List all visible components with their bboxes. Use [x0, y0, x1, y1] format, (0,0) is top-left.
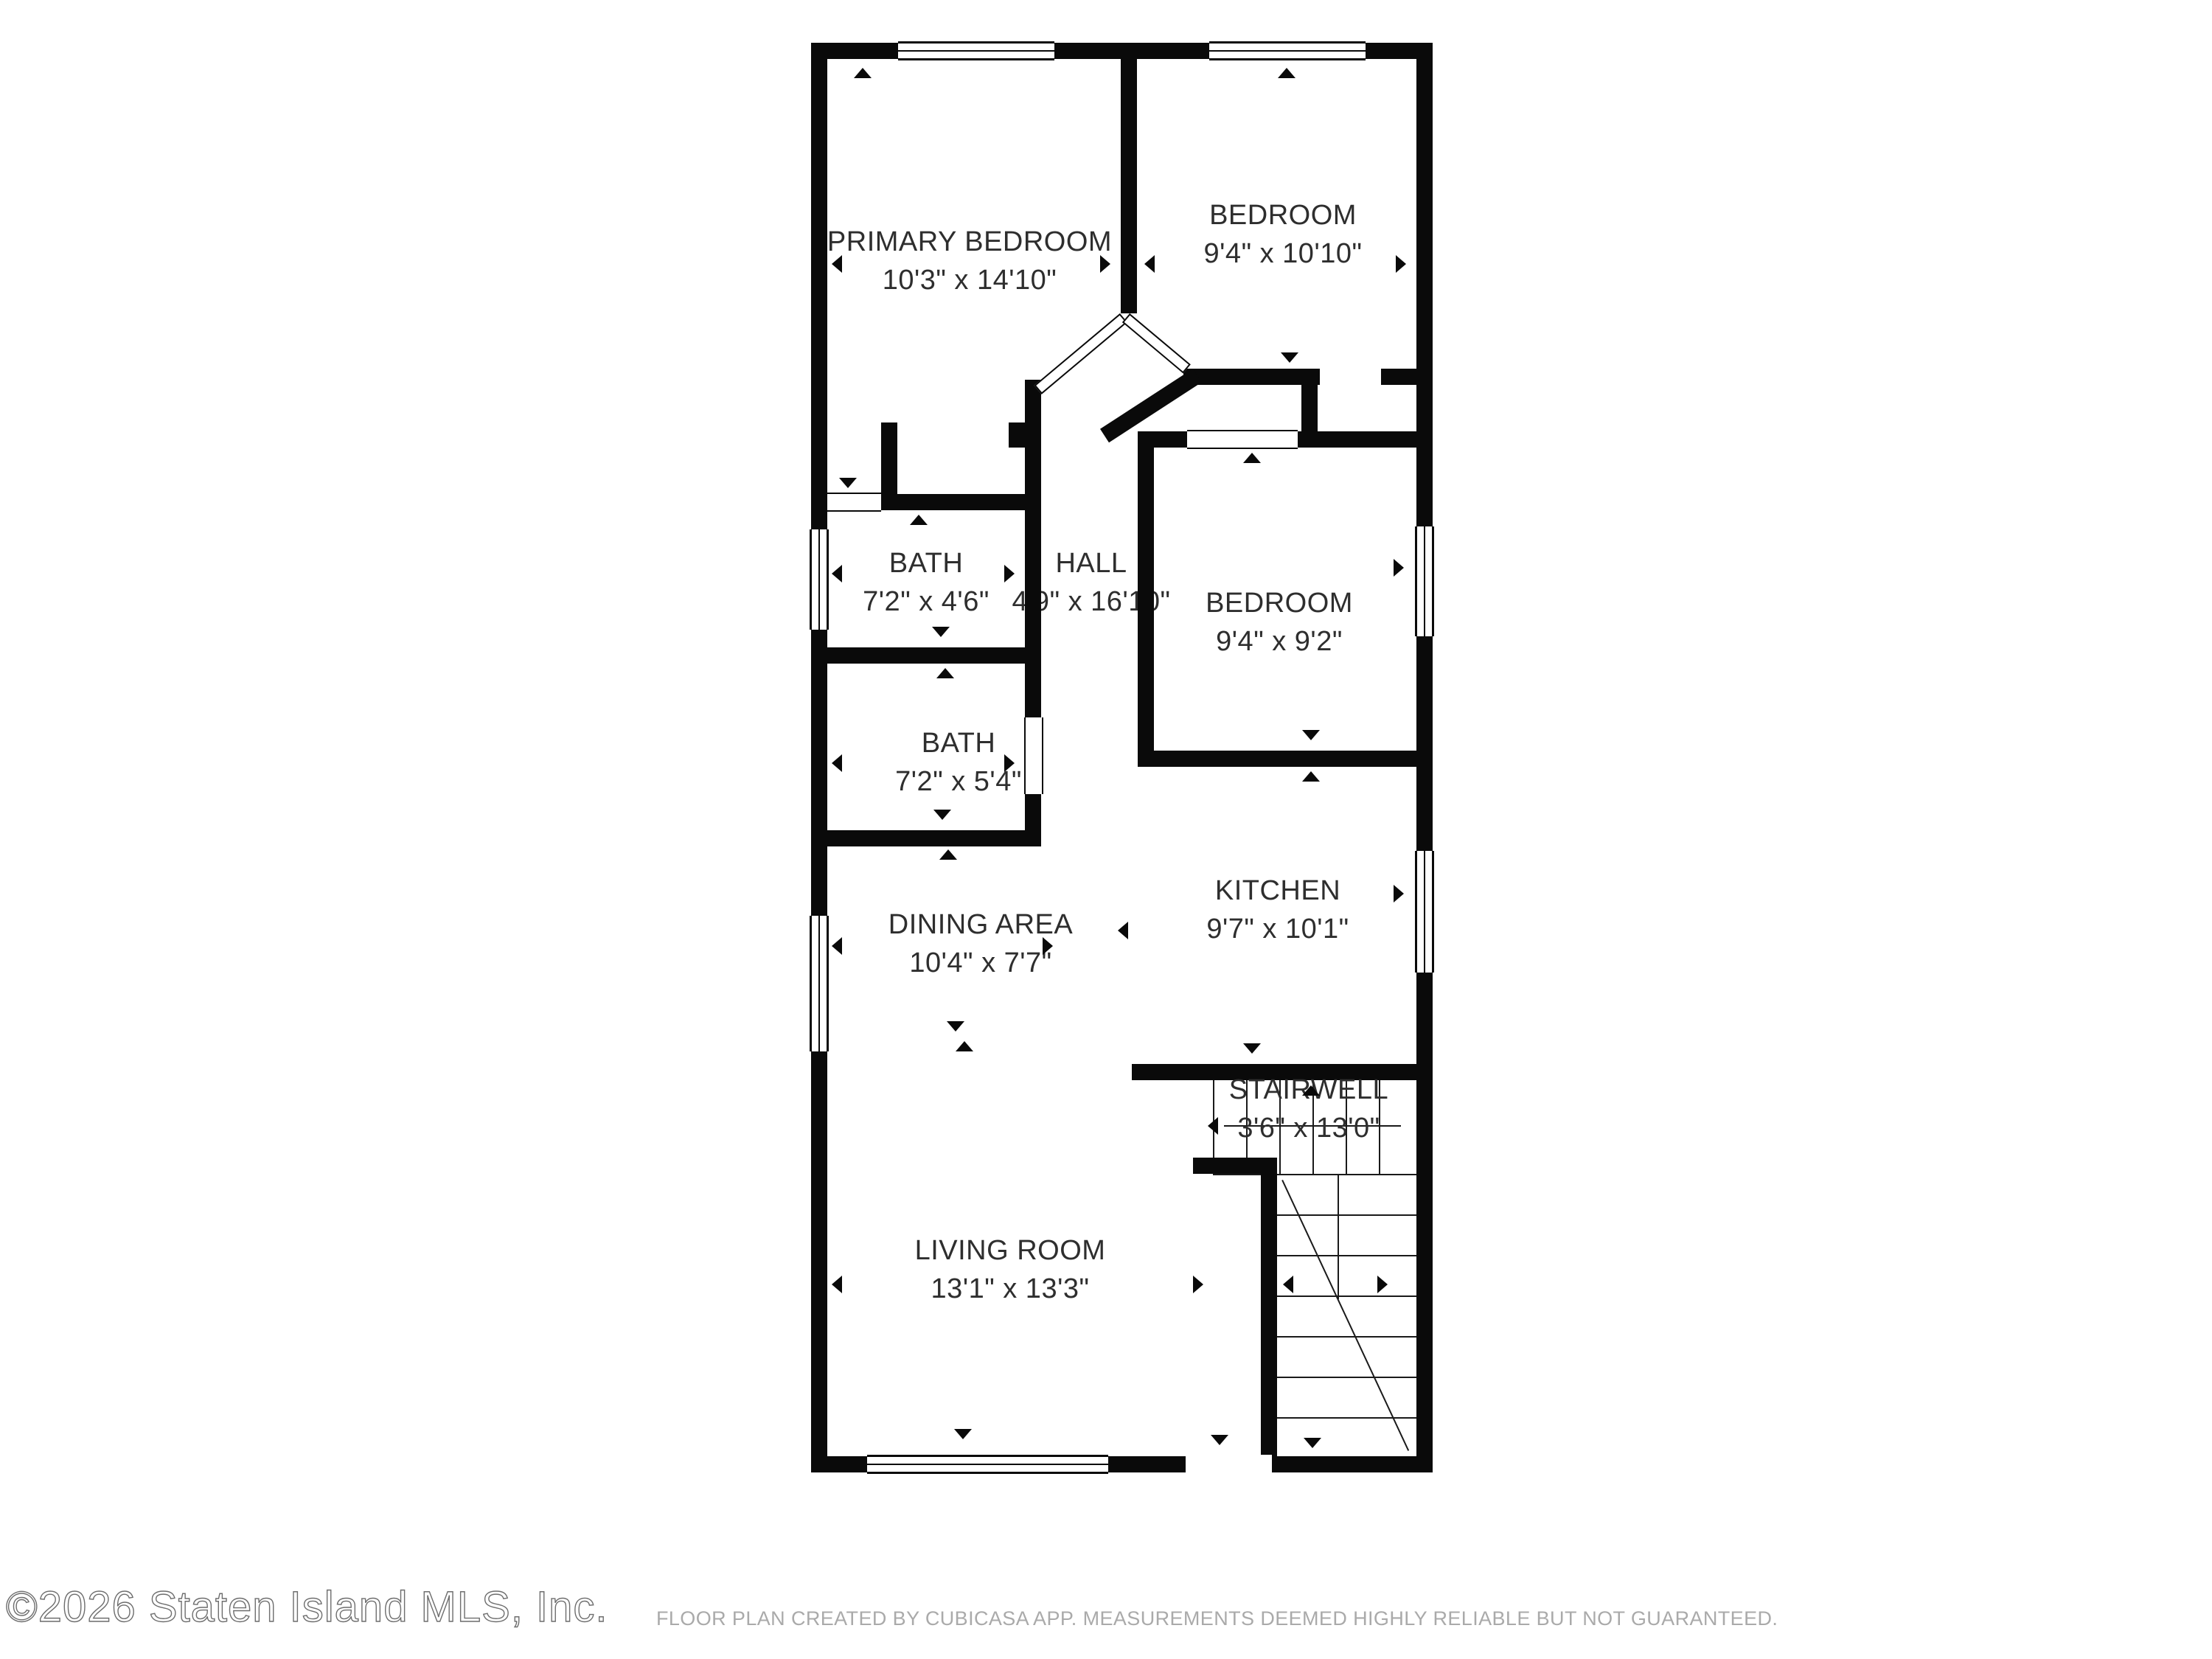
room-dimensions: 10'3" x 14'10"	[822, 261, 1117, 299]
window	[1415, 851, 1434, 973]
stair-direction-arrow	[1208, 1117, 1218, 1135]
wall-segment	[1138, 431, 1154, 767]
wall-segment	[1193, 1158, 1277, 1174]
extent-arrow	[1396, 255, 1406, 273]
room-dimensions: 10'4" x 7'7"	[870, 944, 1091, 982]
wall-segment	[1121, 59, 1137, 313]
wall-segment	[1138, 751, 1416, 767]
extent-arrow	[1043, 937, 1053, 955]
room-label-bedroom-middle: BEDROOM 9'4" x 9'2"	[1169, 584, 1390, 661]
extent-arrow	[1394, 559, 1404, 577]
extent-arrow	[954, 1429, 972, 1439]
extent-arrow	[1100, 255, 1110, 273]
door-opening	[1187, 430, 1298, 449]
extent-arrow	[832, 1276, 842, 1293]
floor-plan: PRIMARY BEDROOM 10'3" x 14'10" BEDROOM 9…	[0, 0, 2212, 1659]
door-opening	[827, 493, 881, 512]
room-name: DINING AREA	[870, 905, 1091, 944]
extent-arrow	[1281, 352, 1298, 363]
extent-arrow	[1118, 922, 1128, 939]
extent-arrow	[832, 754, 842, 772]
door-opening	[1186, 1455, 1272, 1474]
door-opening	[1320, 367, 1381, 386]
extent-arrow	[933, 810, 951, 820]
extent-arrow	[1004, 754, 1015, 772]
room-dimensions: 9'4" x 9'2"	[1169, 622, 1390, 661]
extent-arrow	[1243, 1043, 1261, 1054]
extent-arrow	[910, 515, 928, 525]
extent-arrow	[1304, 1438, 1321, 1448]
room-name: LIVING ROOM	[900, 1231, 1121, 1270]
extent-arrow	[956, 1041, 973, 1051]
wall-segment	[827, 830, 1041, 846]
door-leaf	[1034, 313, 1127, 394]
room-dimensions: 9'7" x 10'1"	[1167, 910, 1388, 948]
extent-arrow	[854, 68, 872, 78]
extent-arrow	[1302, 1085, 1320, 1096]
window	[898, 41, 1054, 60]
room-label-kitchen: KITCHEN 9'7" x 10'1"	[1167, 872, 1388, 948]
extent-arrow	[936, 668, 954, 678]
stair-center-line	[1338, 1174, 1339, 1299]
window	[810, 916, 829, 1051]
extent-arrow	[1278, 68, 1295, 78]
window	[1415, 526, 1434, 636]
extent-arrow	[1243, 453, 1261, 463]
extent-arrow	[1302, 730, 1320, 740]
extent-arrow	[1193, 1276, 1203, 1293]
copyright-watermark: ©2026 Staten Island MLS, Inc.	[6, 1582, 608, 1632]
wall-segment	[1009, 422, 1025, 448]
extent-arrow	[1377, 1276, 1388, 1293]
window	[1209, 41, 1366, 60]
door-opening	[1024, 717, 1043, 794]
wall-segment	[827, 647, 1041, 664]
extent-arrow	[1302, 771, 1320, 782]
room-dimensions: 3'6" x 13'0"	[1198, 1109, 1419, 1147]
room-dimensions: 9'4" x 10'10"	[1172, 234, 1394, 273]
extent-arrow	[1211, 1435, 1228, 1445]
extent-arrow	[832, 255, 842, 273]
room-name: PRIMARY BEDROOM	[822, 223, 1117, 261]
extent-arrow	[1144, 255, 1155, 273]
room-label-living-room: LIVING ROOM 13'1" x 13'3"	[900, 1231, 1121, 1308]
extent-arrow	[839, 478, 857, 488]
wall-segment	[1301, 385, 1318, 431]
disclaimer-text: FLOOR PLAN CREATED BY CUBICASA APP. MEAS…	[656, 1607, 1778, 1630]
extent-arrow	[832, 937, 842, 955]
window	[810, 529, 829, 630]
extent-arrow	[947, 1021, 964, 1032]
room-label-bedroom-top: BEDROOM 9'4" x 10'10"	[1172, 196, 1394, 273]
window	[867, 1455, 1108, 1474]
wall-outer-right	[1416, 43, 1433, 1472]
room-label-dining-area: DINING AREA 10'4" x 7'7"	[870, 905, 1091, 982]
wall-segment	[1183, 369, 1416, 385]
wall-segment	[1261, 1174, 1277, 1456]
room-name: BEDROOM	[1172, 196, 1394, 234]
extent-arrow	[1283, 1276, 1293, 1293]
wall-outer-left	[811, 43, 827, 1472]
door-leaf	[1122, 313, 1191, 374]
room-label-stairwell: STAIRWELL 3'6" x 13'0"	[1198, 1071, 1419, 1147]
extent-arrow	[932, 627, 950, 637]
extent-arrow	[939, 849, 957, 860]
wall-segment	[881, 422, 897, 510]
room-label-primary-bedroom: PRIMARY BEDROOM 10'3" x 14'10"	[822, 223, 1117, 299]
room-name: BEDROOM	[1169, 584, 1390, 622]
room-dimensions: 13'1" x 13'3"	[900, 1270, 1121, 1308]
extent-arrow	[1004, 565, 1015, 582]
extent-arrow	[832, 565, 842, 582]
extent-arrow	[1394, 885, 1404, 902]
room-name: KITCHEN	[1167, 872, 1388, 910]
